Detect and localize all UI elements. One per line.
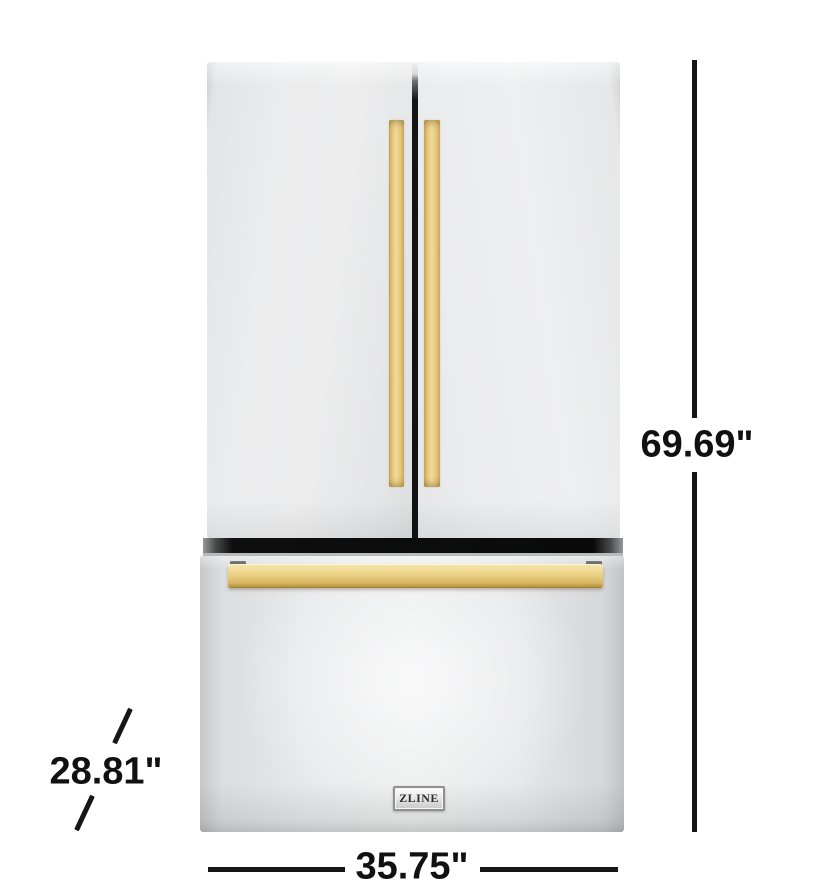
- zline-logo-text: ZLINE: [399, 791, 439, 806]
- door-drawer-gap: [203, 538, 623, 556]
- right-door-handle: [424, 120, 440, 487]
- freezer-drawer-handle: [228, 564, 603, 588]
- freezer-drawer: ZLINE: [200, 556, 624, 832]
- height-dimension-line-bottom: [692, 472, 697, 832]
- depth-dimension-slash-bottom: [74, 795, 95, 832]
- width-dimension-line-left: [208, 867, 345, 872]
- left-door-handle: [389, 120, 404, 487]
- product-spec-image: ZLINE 69.69" 35.75" 28.81": [0, 0, 828, 893]
- zline-logo-badge: ZLINE: [393, 786, 445, 811]
- width-dimension-label: 35.75": [355, 846, 468, 889]
- depth-dimension-label: 28.81": [49, 751, 162, 794]
- right-refrigerator-door: [418, 62, 620, 538]
- depth-dimension-slash-top: [112, 708, 133, 745]
- height-dimension-line-top: [692, 60, 697, 418]
- width-dimension-line-right: [480, 867, 618, 872]
- left-refrigerator-door: [207, 62, 412, 538]
- height-dimension-label: 69.69": [640, 424, 753, 467]
